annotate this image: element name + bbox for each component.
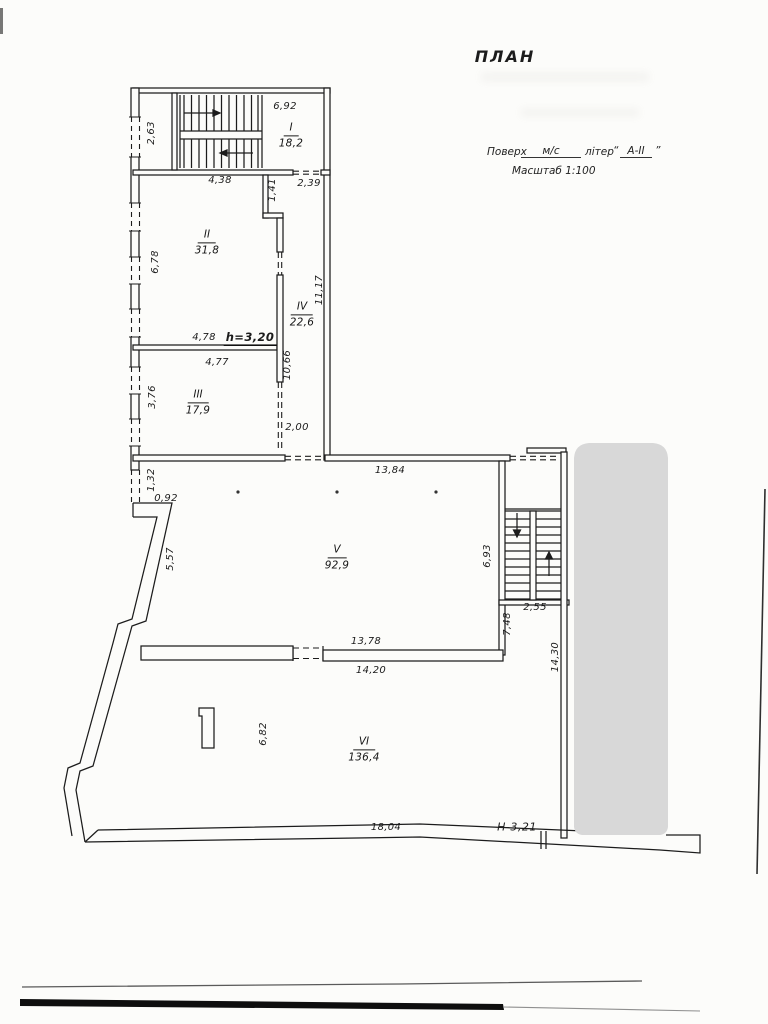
- stair-direction-arrows: [184, 110, 253, 156]
- dim-13-78: 13,78: [351, 637, 381, 647]
- dim-3-76: 3,76: [148, 385, 158, 408]
- level-note: Н-3,21: [497, 821, 537, 834]
- dim-4-38: 4,38: [208, 176, 231, 186]
- floor-value-field: м/с: [521, 146, 581, 158]
- redacted-region: [574, 443, 668, 835]
- dim-1-41: 1,41: [268, 178, 278, 201]
- dim-6-82: 6,82: [259, 722, 269, 745]
- dim-13-84: 13,84: [375, 466, 405, 476]
- staircase-upper: [180, 95, 262, 168]
- room-label-V: V 92,9: [325, 543, 350, 572]
- dim-5-57: 5,57: [166, 547, 176, 570]
- dim-14-30: 14,30: [551, 642, 561, 672]
- staircase-main: [505, 509, 561, 600]
- dim-6-93: 6,93: [483, 544, 493, 567]
- dim-6-92: 6,92: [273, 102, 296, 112]
- scan-line-thick: [20, 999, 504, 1010]
- scan-line-thin: [22, 981, 642, 987]
- room-label-IV: IV 22,6: [290, 300, 315, 329]
- dim-2-63: 2,63: [147, 121, 157, 144]
- scan-smudge: [520, 108, 640, 117]
- liter-label: літер: [585, 147, 614, 158]
- height-note: h=3,20: [224, 330, 277, 346]
- plan-title: ПЛАН: [470, 47, 540, 66]
- room-label-III: III 17,9: [186, 388, 211, 417]
- dim-2-00: 2,00: [285, 423, 308, 433]
- room-label-I: I 18,2: [279, 121, 304, 150]
- dim-6-78: 6,78: [151, 250, 161, 273]
- room-label-II: II 31,8: [195, 228, 220, 257]
- dim-4-78: 4,78: [192, 333, 215, 343]
- dim-10-66: 10,66: [283, 350, 293, 380]
- column: [199, 708, 214, 748]
- scan-smudge: [480, 72, 650, 82]
- dim-4-77: 4,77: [205, 358, 228, 368]
- column-dots: [236, 490, 437, 493]
- dim-18-04: 18,04: [371, 823, 401, 833]
- room-label-VI: VI 136,4: [348, 735, 380, 764]
- liter-close-quote: ”: [655, 146, 660, 157]
- dim-14-20: 14,20: [356, 666, 386, 676]
- floor-plan-drawing: [0, 0, 768, 1024]
- lower-left-wall: [64, 503, 172, 842]
- liter-open-quote: “: [613, 146, 618, 157]
- scale-note: Масштаб 1:100: [512, 166, 596, 177]
- dim-2-55: 2,55: [523, 603, 546, 613]
- dim-2-39: 2,39: [297, 179, 320, 189]
- page-edge-shadow: [757, 489, 765, 874]
- dim-1-32: 1,32: [147, 468, 157, 491]
- dim-7-48: 7,48: [503, 612, 513, 635]
- dim-11-17: 11,17: [315, 275, 325, 305]
- door-openings: [278, 171, 560, 658]
- floor-plan-page: ПЛАН Поверх м/с літер “ А-ІІ ” Масштаб 1…: [0, 0, 768, 1024]
- dim-0-92: 0,92: [154, 494, 177, 504]
- liter-value-field: А-ІІ: [620, 146, 652, 158]
